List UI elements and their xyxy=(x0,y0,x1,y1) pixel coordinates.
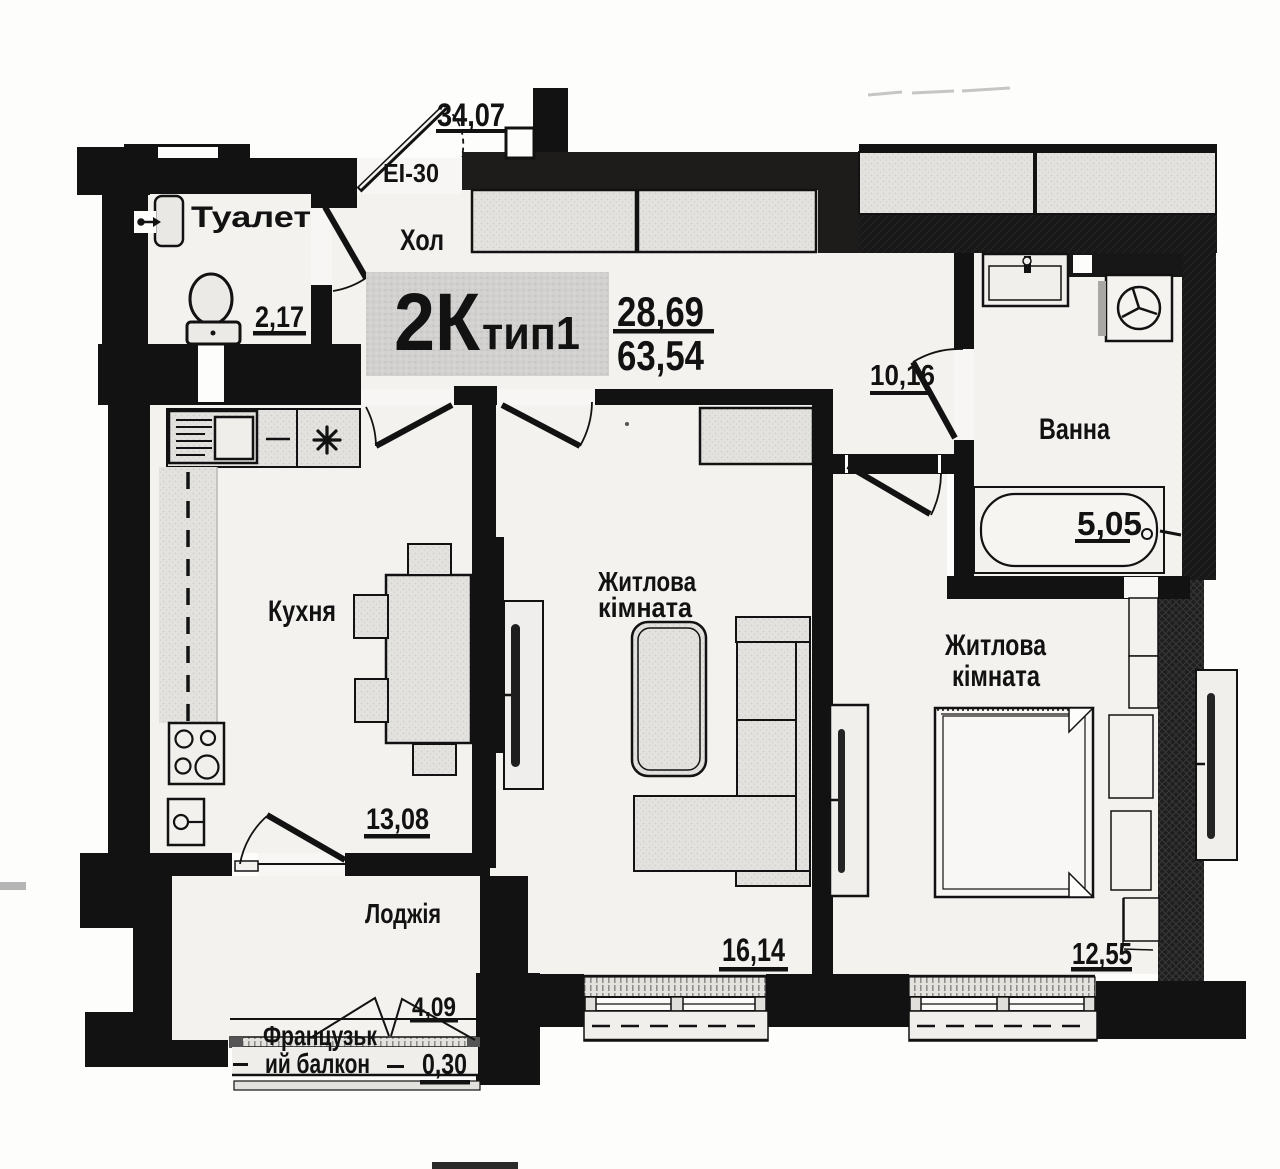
svg-text:0,30: 0,30 xyxy=(422,1049,467,1081)
svg-text:кімната: кімната xyxy=(952,660,1040,693)
svg-text:Туалет: Туалет xyxy=(191,201,311,234)
svg-text:2К: 2К xyxy=(394,277,481,368)
svg-text:10,16: 10,16 xyxy=(870,360,935,392)
svg-text:Хол: Хол xyxy=(400,224,444,257)
svg-text:кімната: кімната xyxy=(598,592,692,623)
svg-text:Житлова: Житлова xyxy=(944,629,1046,662)
svg-text:Ванна: Ванна xyxy=(1039,413,1110,446)
svg-text:63,54: 63,54 xyxy=(617,332,705,379)
svg-text:ий балкон: ий балкон xyxy=(265,1048,370,1079)
svg-text:28,69: 28,69 xyxy=(617,288,704,335)
svg-text:Французьк: Французьк xyxy=(263,1020,378,1051)
svg-text:Лоджія: Лоджія xyxy=(365,898,441,929)
svg-text:2,17: 2,17 xyxy=(255,301,304,334)
svg-text:13,08: 13,08 xyxy=(366,803,429,836)
svg-text:4,09: 4,09 xyxy=(412,992,456,1022)
svg-text:Кухня: Кухня xyxy=(268,595,336,628)
svg-text:EI-30: EI-30 xyxy=(383,158,439,188)
svg-text:16,14: 16,14 xyxy=(722,932,785,968)
svg-text:5,05: 5,05 xyxy=(1077,505,1142,542)
svg-text:тип1: тип1 xyxy=(482,307,580,359)
svg-text:12,55: 12,55 xyxy=(1072,936,1132,971)
svg-text:34,07: 34,07 xyxy=(437,97,505,133)
